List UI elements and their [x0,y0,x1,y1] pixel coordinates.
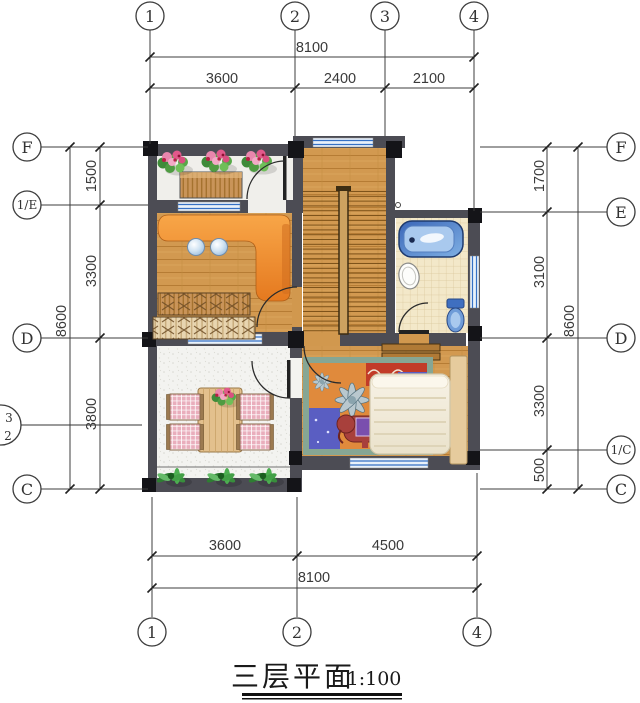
chair-symbol [167,394,204,420]
dim-right-total: 8600 [562,305,578,337]
dim-right-seg1: 1700 [532,160,548,192]
axis-label: E [615,203,627,222]
door-leaf-balcony [283,156,287,200]
axis-label: 3 [380,7,390,26]
axis-label: 4 [472,623,482,642]
dim-top-total: 8100 [296,40,328,56]
title-underline [242,693,402,696]
drawing-title: 三层平面 [231,662,355,693]
dim-right-seg3: 3300 [532,385,548,417]
stair-railing-symbol [339,188,348,334]
window-balcony-divider [178,202,240,211]
bathtub-symbol [399,221,463,257]
wall-balcony-top [148,144,303,156]
chair-symbol [167,424,204,450]
axis-label: 1 [147,623,157,642]
axis-label: F [615,138,626,157]
dim-left-seg3: 3800 [84,398,100,430]
dim-bottom-seg2: 4500 [372,538,404,554]
axis-label: D [21,329,34,348]
dim-top-seg3: 2100 [413,71,445,87]
floor-plan-drawing: 1 2 3 4 1 2 4 F 1/E D C 3 2 F E D 1/C C … [0,0,640,703]
floor-plan-page: 1 2 3 4 1 2 4 F 1/E D C 3 2 F E D 1/C C … [0,0,640,703]
dim-left-seg2: 3300 [84,255,100,287]
drawing-scale: 1:100 [347,668,402,690]
door-leaf-terrace [287,360,291,398]
chair-symbol [237,424,274,450]
axis-label: F [21,138,32,157]
axis-label: C [21,480,33,499]
window-stair-top [313,138,373,147]
axis-label: 2 [290,7,300,26]
axis-label: C [615,480,627,499]
axis-label: 2 [292,623,302,642]
axis-label: 1/E [17,198,37,212]
dim-top-seg1: 3600 [206,71,238,87]
furniture-stairs [303,186,386,334]
stool-symbol [211,239,228,256]
dim-top-seg2: 2400 [324,71,356,87]
dim-left-seg1: 1500 [84,160,100,192]
axis-label: 4 [469,7,479,26]
door-leaf-bathroom [399,330,429,334]
dim-left-total: 8600 [54,305,70,337]
axis-label-partial-bottom: 2 [4,429,12,443]
dim-bottom-seg1: 3600 [209,538,241,554]
axis-label-partial-top: 3 [5,411,13,425]
axis-label: D [615,329,628,348]
axis-label: 1/C [611,443,632,457]
window-bedroom-bottom [350,458,428,468]
title-underline-2 [242,698,402,700]
palm-motif [335,383,369,417]
axis-label: 1 [145,7,155,26]
stool-symbol [188,239,205,256]
wall-stair-right [386,136,395,333]
wall-bathroom-top [386,210,480,218]
toilet-symbol [447,299,464,332]
dim-right-seg4: 500 [532,458,548,482]
chair-symbol [237,394,274,420]
window-bathroom-right [470,256,479,308]
dim-right-seg2: 3100 [532,256,548,288]
dim-bottom-total: 8100 [298,570,330,586]
door-knob-mark [396,203,401,208]
